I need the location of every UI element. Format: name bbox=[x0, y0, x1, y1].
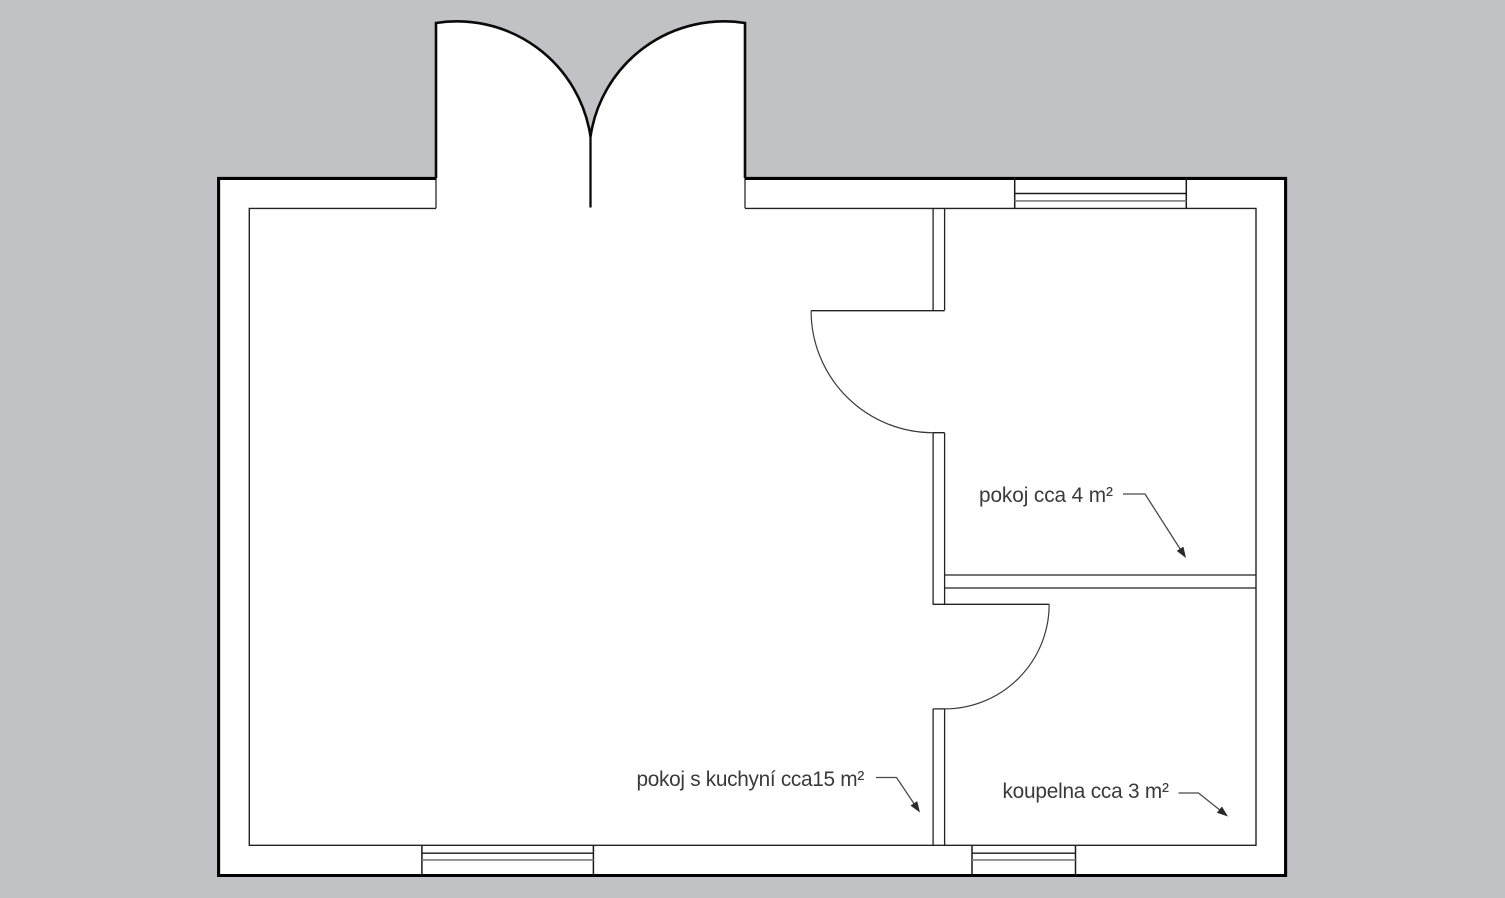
svg-text:pokoj s kuchyní cca15 m²: pokoj s kuchyní cca15 m² bbox=[637, 768, 865, 791]
svg-text:pokoj cca 4 m²: pokoj cca 4 m² bbox=[979, 484, 1113, 507]
svg-text:koupelna cca 3 m²: koupelna cca 3 m² bbox=[1003, 780, 1169, 803]
